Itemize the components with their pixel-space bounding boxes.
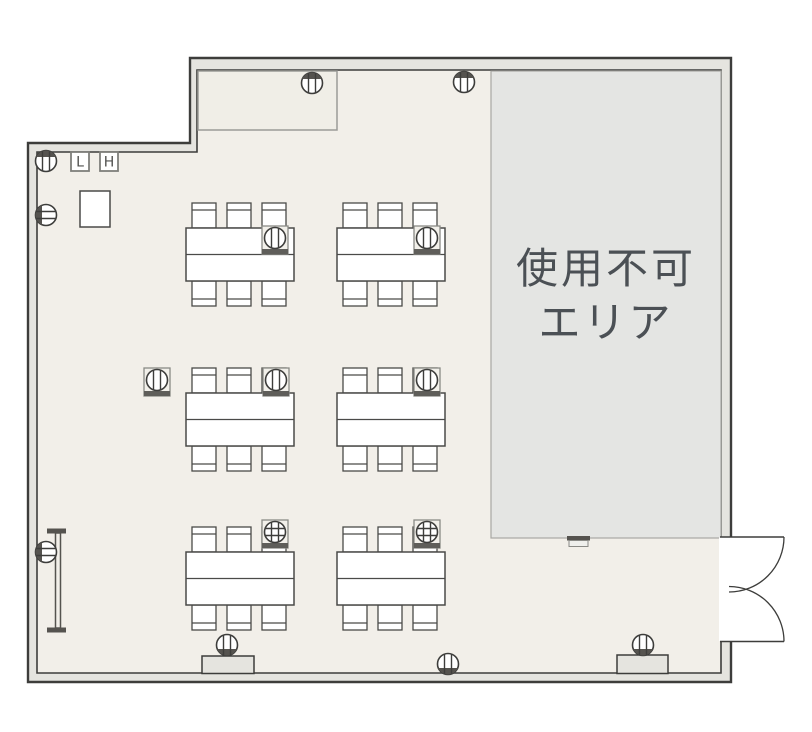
table-4 bbox=[337, 368, 445, 471]
wall-outlet-icon bbox=[454, 71, 475, 92]
chair bbox=[227, 281, 251, 306]
wall-sign-body bbox=[569, 541, 588, 547]
chair bbox=[343, 281, 367, 306]
chair bbox=[343, 368, 367, 393]
power-tap-icon bbox=[144, 368, 170, 396]
chair bbox=[378, 203, 402, 228]
chair bbox=[378, 605, 402, 630]
table-6 bbox=[337, 520, 445, 630]
switch-label-high: H bbox=[104, 155, 115, 171]
chair bbox=[262, 203, 286, 228]
power-tap-icon bbox=[414, 226, 440, 254]
chair bbox=[262, 281, 286, 306]
partition-cap-bottom bbox=[47, 628, 66, 633]
wall-outlet-icon bbox=[36, 150, 57, 171]
chair bbox=[192, 605, 216, 630]
wall-outlet-icon bbox=[438, 654, 459, 675]
chair bbox=[413, 203, 437, 228]
power-tap-icon bbox=[414, 368, 440, 396]
chair bbox=[227, 446, 251, 471]
floor-plan-page: 使用不可 エリア L H bbox=[0, 0, 812, 732]
chair bbox=[227, 203, 251, 228]
chair bbox=[413, 605, 437, 630]
chair bbox=[227, 527, 251, 552]
power-tap-icon bbox=[263, 368, 289, 396]
switch-label-low: L bbox=[76, 155, 84, 171]
chair bbox=[343, 203, 367, 228]
chair bbox=[192, 527, 216, 552]
door-opening bbox=[719, 538, 733, 642]
table-5 bbox=[186, 520, 294, 630]
wall-sign bbox=[567, 536, 590, 547]
chair bbox=[413, 281, 437, 306]
table-2 bbox=[337, 203, 445, 306]
chair bbox=[227, 368, 251, 393]
chair bbox=[192, 281, 216, 306]
wall-outlet-icon bbox=[217, 635, 238, 656]
chair bbox=[192, 203, 216, 228]
chair bbox=[192, 368, 216, 393]
chair bbox=[343, 605, 367, 630]
chair bbox=[413, 446, 437, 471]
wall-outlet-icon bbox=[35, 542, 56, 563]
chair bbox=[343, 527, 367, 552]
pillar bbox=[617, 655, 668, 674]
cabinet bbox=[80, 191, 110, 227]
chair bbox=[227, 605, 251, 630]
table-3 bbox=[186, 368, 294, 471]
wall-outlet-icon bbox=[633, 635, 654, 656]
chair bbox=[262, 605, 286, 630]
grid-tap-icon bbox=[414, 520, 440, 548]
chair bbox=[343, 446, 367, 471]
power-tap-icon bbox=[262, 226, 288, 254]
chair bbox=[378, 281, 402, 306]
chair bbox=[378, 527, 402, 552]
unusable-area-label-line1: 使用不可 bbox=[516, 244, 696, 293]
grid-tap-icon bbox=[262, 520, 288, 548]
table-1 bbox=[186, 203, 294, 306]
chair bbox=[262, 446, 286, 471]
chair bbox=[192, 446, 216, 471]
partition-cap-top bbox=[47, 529, 66, 534]
pillar bbox=[202, 656, 254, 674]
floor-plan-canvas: 使用不可 エリア L H bbox=[0, 0, 812, 732]
wall-sign-bar bbox=[567, 536, 590, 541]
chair bbox=[378, 446, 402, 471]
unusable-area-label-line2: エリア bbox=[538, 298, 673, 347]
chair bbox=[378, 368, 402, 393]
wall-outlet-icon bbox=[302, 72, 323, 93]
wall-outlet-icon bbox=[35, 205, 56, 226]
